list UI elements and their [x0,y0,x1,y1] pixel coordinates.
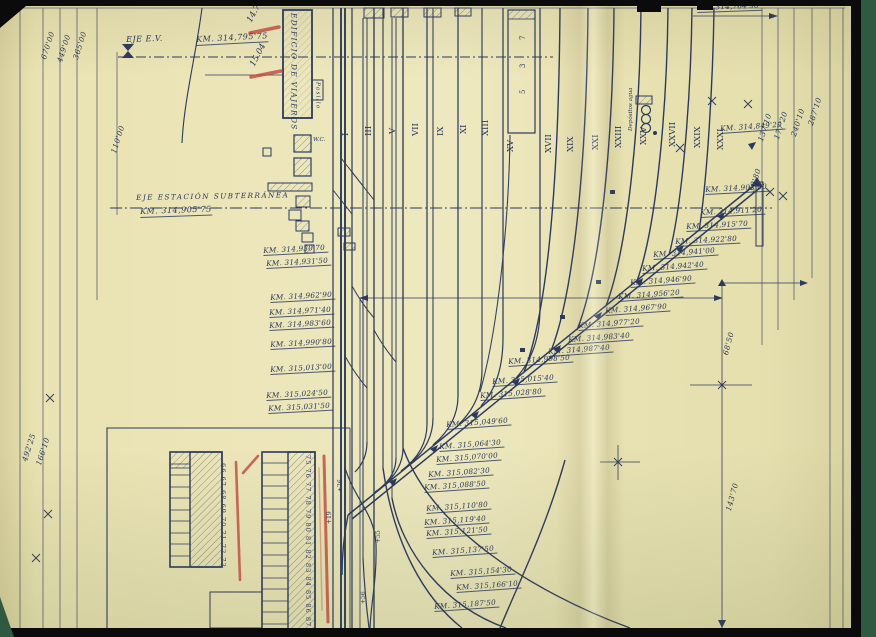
scanned-track-plan: KM. 314,764'90KM. 314,849'20KM. 314,902'… [0,0,876,637]
diagonal-ladder-track [342,177,763,575]
scan-bar-top [0,0,876,6]
scan-corner-top-left [0,6,26,28]
plan-drawing [0,0,876,637]
water-deposits-icon [636,96,657,135]
straight-tracks [333,8,540,628]
survey-ticks [32,97,787,562]
track-bumpers [364,8,471,18]
lower-buildings [107,428,350,635]
scan-edge-green [861,0,876,637]
scan-bar-bottom [0,628,876,637]
station-axis-line [110,44,772,208]
curved-track-fan [182,8,714,372]
scan-edge-right [851,0,861,637]
binder-tab-icon [637,0,661,12]
binder-tab-icon [697,0,713,10]
bottom-curves [345,448,630,628]
crossover-links [333,158,396,388]
